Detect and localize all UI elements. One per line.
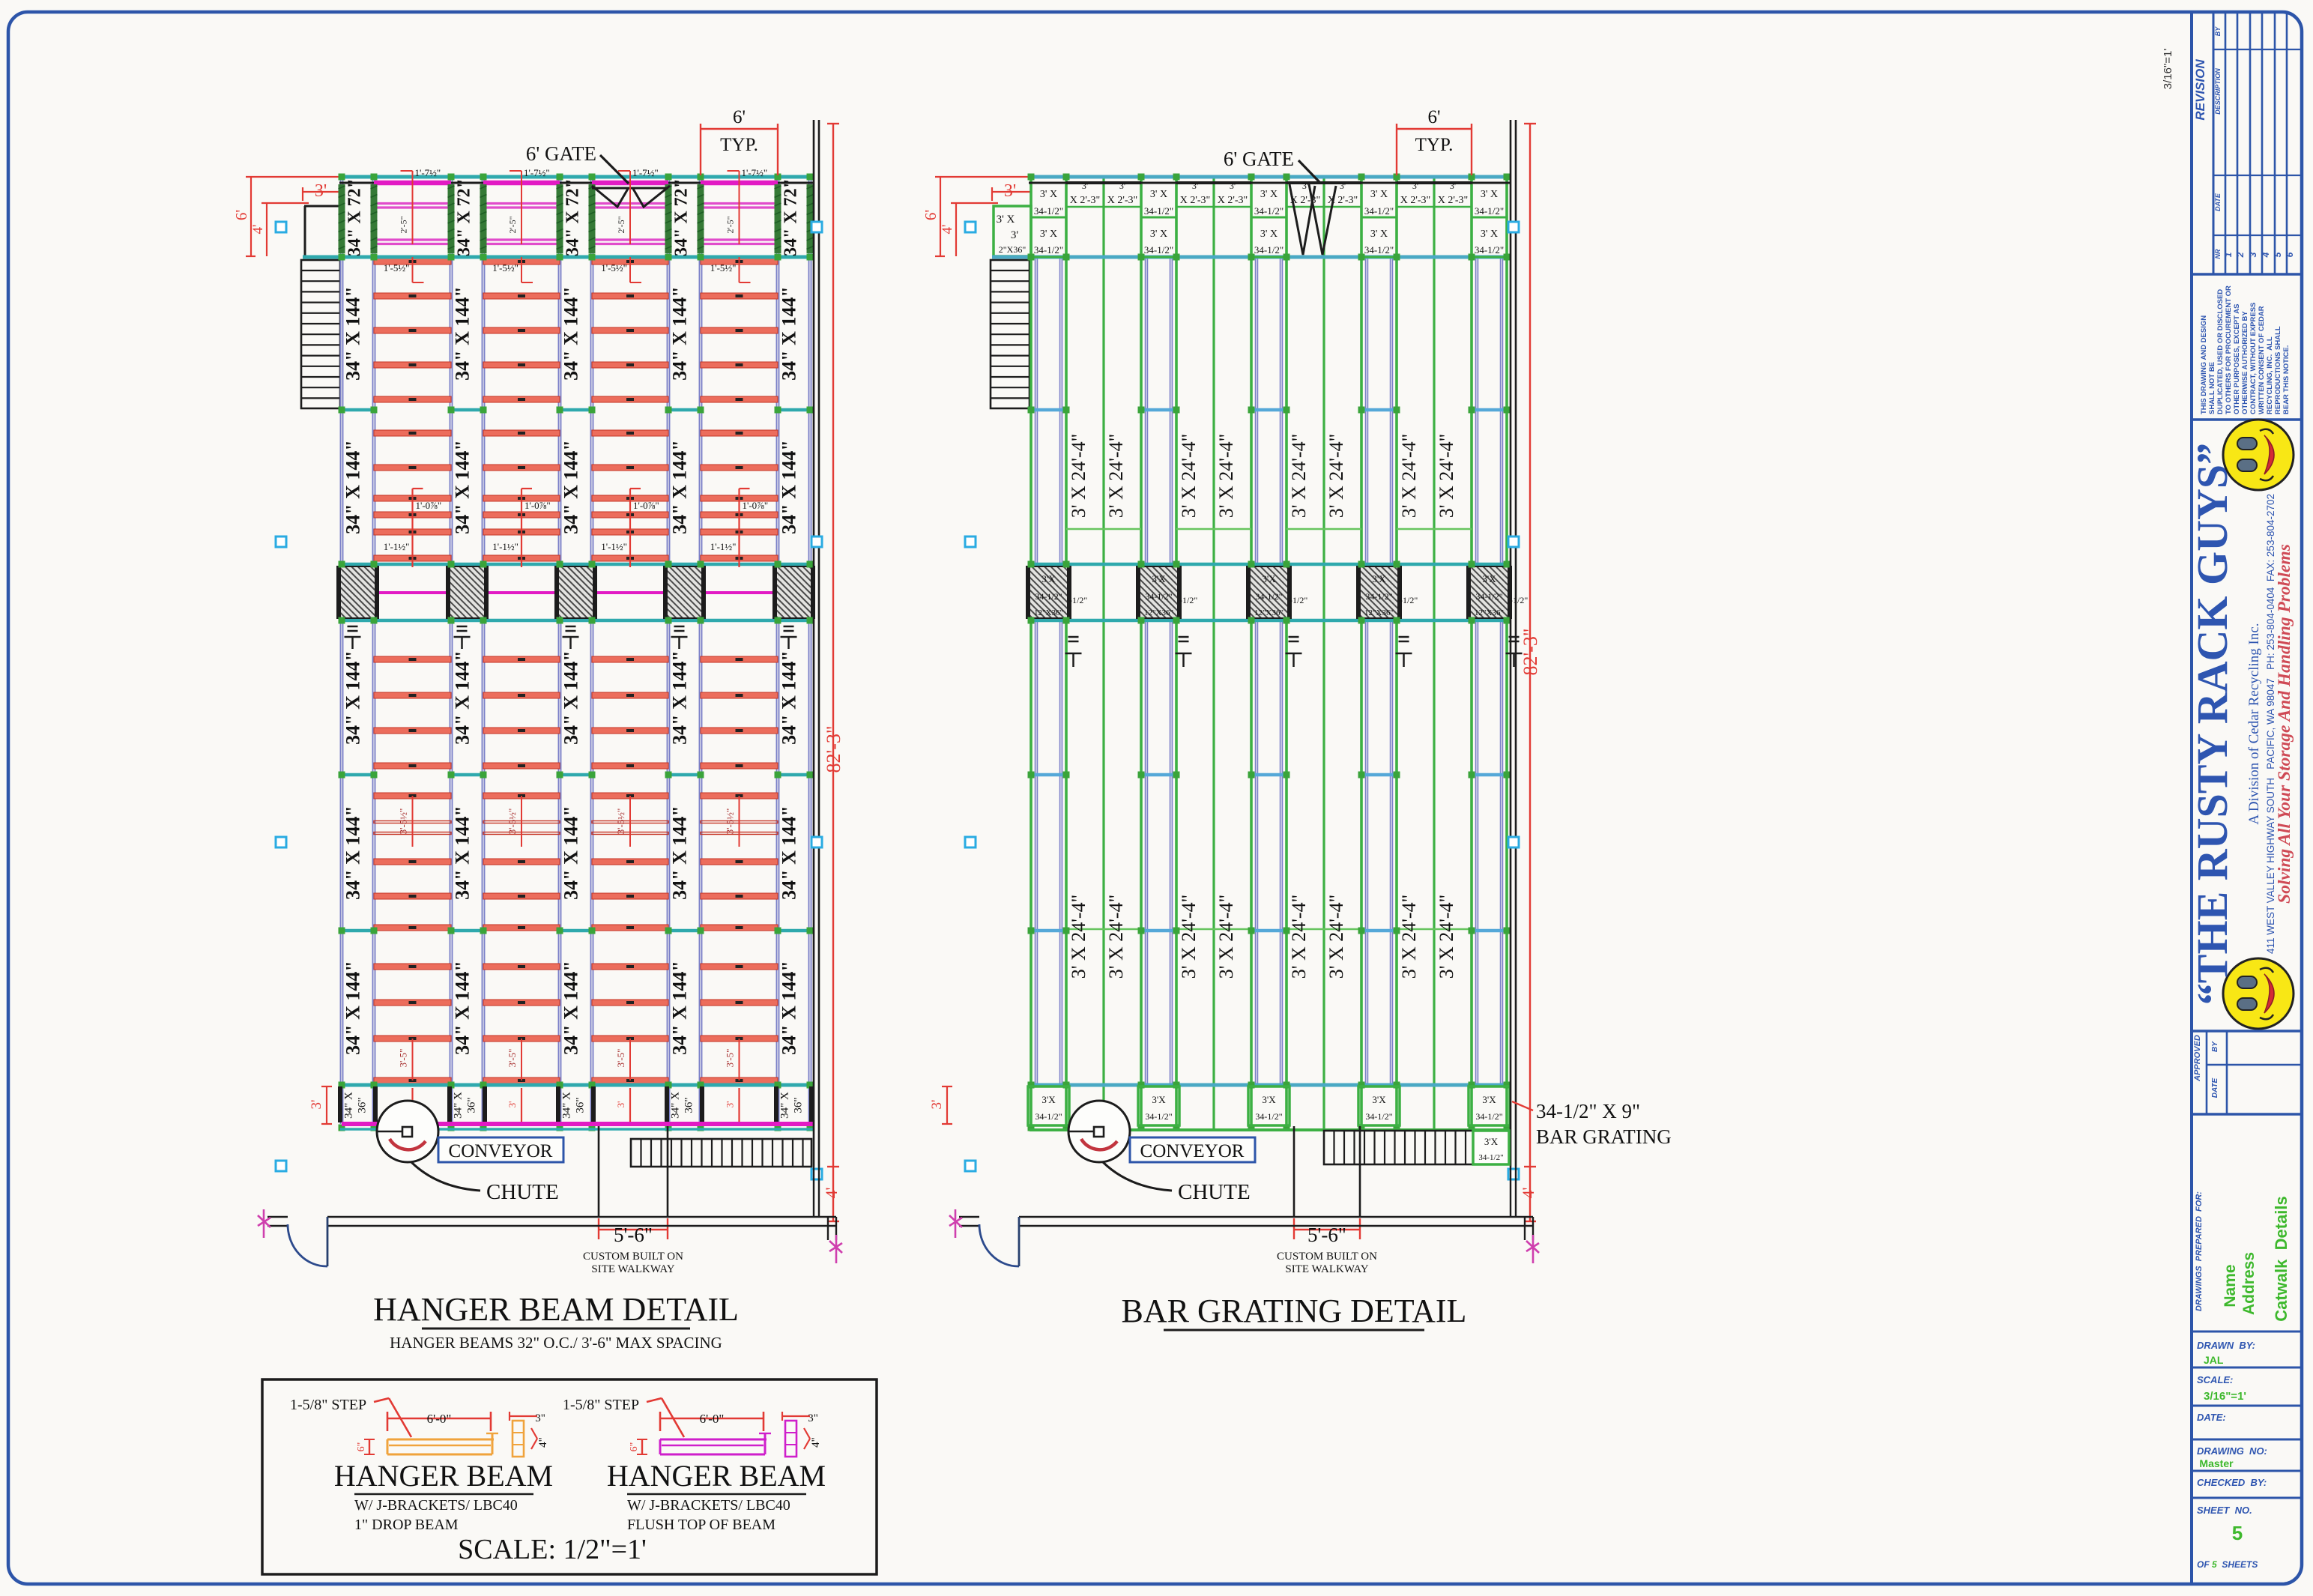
svg-text:3'X: 3'X (1262, 573, 1276, 584)
svg-text:CUSTOM BUILT ON: CUSTOM BUILT ON (583, 1251, 683, 1263)
svg-text:3'X: 3'X (1482, 1094, 1496, 1105)
svg-text:HANGER BEAM: HANGER BEAM (607, 1459, 826, 1493)
svg-text:34-1/2": 34-1/2" (1144, 205, 1173, 217)
svg-text:SCALE:: SCALE: (2197, 1374, 2233, 1385)
svg-text:3': 3' (1340, 181, 1346, 191)
svg-text:SITE WALKWAY: SITE WALKWAY (1285, 1263, 1368, 1275)
svg-text:OTHER PURPOSES, EXCEPT AS: OTHER PURPOSES, EXCEPT AS (2233, 304, 2241, 414)
svg-text:REPRODUCTIONS SHALL: REPRODUCTIONS SHALL (2274, 326, 2282, 414)
svg-text:“THE RUSTY RACK GUYS”: “THE RUSTY RACK GUYS” (2188, 443, 2237, 1005)
svg-text:2'-5": 2'-5" (507, 216, 518, 233)
svg-text:34" X: 34" X (670, 1092, 682, 1119)
svg-text:REVISION: REVISION (2193, 59, 2207, 121)
svg-text:1'-7½": 1'-7½" (742, 167, 768, 178)
svg-text:3' X 24'-4": 3' X 24'-4" (1068, 434, 1089, 518)
svg-text:RECYCLING, INC. ALL: RECYCLING, INC. ALL (2266, 336, 2274, 414)
svg-text:34-1/2": 34-1/2" (1254, 205, 1284, 217)
svg-text:3'X: 3'X (1482, 573, 1496, 584)
svg-text:34" X 72": 34" X 72" (345, 178, 365, 256)
svg-text:6' GATE: 6' GATE (526, 142, 596, 165)
svg-text:34" X 72": 34" X 72" (672, 178, 692, 256)
svg-text:-1/2": -1/2" (1289, 595, 1307, 605)
svg-text:1'-1½": 1'-1½" (384, 541, 410, 552)
svg-text:34" X 144": 34" X 144" (560, 286, 582, 381)
svg-text:6': 6' (922, 210, 940, 220)
svg-text:DATE:: DATE: (2197, 1412, 2226, 1423)
svg-text:OTHERWISE AUTHORIZED BY: OTHERWISE AUTHORIZED BY (2241, 311, 2249, 414)
svg-text:2'-5": 2'-5" (616, 216, 626, 233)
svg-text:X 2'-3": X 2'-3" (1400, 195, 1431, 206)
svg-text:HANGER BEAMS 32" O.C./ 3'-6" M: HANGER BEAMS 32" O.C./ 3'-6" MAX SPACING (390, 1334, 722, 1352)
svg-text:X 2'-3": X 2'-3" (1438, 195, 1469, 206)
svg-text:3': 3' (1119, 181, 1125, 191)
svg-text:34" X 72": 34" X 72" (781, 178, 801, 256)
svg-text:34-1/2": 34-1/2" (1145, 1111, 1172, 1122)
svg-text:34-1/2": 34-1/2" (1255, 1111, 1282, 1122)
svg-text:36": 36" (575, 1097, 587, 1113)
svg-text:3'-5½": 3'-5½" (615, 808, 626, 835)
svg-text:6": 6" (356, 1442, 367, 1452)
svg-text:36": 36" (466, 1097, 478, 1113)
svg-text:3/16"=1': 3/16"=1' (2162, 49, 2174, 90)
svg-text:3': 3' (929, 1100, 945, 1110)
svg-text:34-1/2": 34-1/2" (1145, 591, 1172, 602)
svg-text:3: 3 (2248, 252, 2258, 257)
svg-text:34" X 144": 34" X 144" (452, 805, 474, 900)
svg-text:1'-5½": 1'-5½" (601, 262, 627, 273)
svg-text:34" X 144": 34" X 144" (669, 805, 691, 900)
svg-text:3': 3' (1450, 181, 1456, 191)
svg-text:3': 3' (1082, 181, 1088, 191)
svg-text:BAR GRATING: BAR GRATING (1536, 1125, 1672, 1148)
svg-text:34-1/2": 34-1/2" (1255, 591, 1282, 602)
svg-text:DUPLICATED, USED OR DISCLOSED: DUPLICATED, USED OR DISCLOSED (2216, 289, 2225, 414)
svg-text:TYP.: TYP. (1415, 135, 1454, 155)
svg-text:3' X: 3' X (1481, 229, 1498, 240)
svg-text:6': 6' (1427, 107, 1440, 127)
svg-text:1-5/8" STEP: 1-5/8" STEP (563, 1397, 639, 1413)
svg-text:34-1/2": 34-1/2" (1475, 244, 1504, 256)
svg-text:-1/2": -1/2" (1069, 595, 1087, 605)
svg-text:82'-3": 82'-3" (1520, 629, 1541, 676)
svg-text:36": 36" (793, 1097, 805, 1113)
svg-text:34-1/2": 34-1/2" (1035, 591, 1062, 602)
svg-text:3' X: 3' X (1370, 229, 1388, 240)
svg-text:DESCRIPTION: DESCRIPTION (2214, 68, 2222, 115)
svg-text:2: 2 (2235, 252, 2246, 258)
svg-text:Solving All Your Storage And H: Solving All Your Storage And Handling Pr… (2275, 544, 2294, 904)
svg-text:34" X: 34" X (343, 1092, 355, 1119)
svg-text:34-1/2": 34-1/2" (1365, 591, 1392, 602)
svg-text:TYP.: TYP. (720, 135, 758, 155)
svg-text:3": 3" (808, 1412, 818, 1424)
svg-text:CONVEYOR: CONVEYOR (449, 1141, 553, 1161)
svg-text:3' X: 3' X (1260, 229, 1278, 240)
svg-text:1'-7½": 1'-7½" (415, 167, 441, 178)
svg-text:3'X: 3'X (1152, 573, 1166, 584)
svg-text:JAL: JAL (2204, 1354, 2224, 1366)
svg-text:3/16"=1': 3/16"=1' (2204, 1390, 2246, 1403)
svg-text:4': 4' (940, 225, 955, 235)
svg-text:3'X: 3'X (1484, 1136, 1499, 1147)
svg-text:-1/2": -1/2" (1510, 595, 1528, 605)
svg-text:34-1/2": 34-1/2" (1365, 1111, 1392, 1122)
svg-text:34-1/2": 34-1/2" (1475, 591, 1502, 602)
svg-text:3' X 24'-4": 3' X 24'-4" (1105, 434, 1127, 518)
svg-text:1'-7½": 1'-7½" (524, 167, 550, 178)
svg-text:2'-5": 2'-5" (399, 216, 409, 233)
svg-text:4': 4' (1519, 1187, 1538, 1198)
svg-text:3' X: 3' X (1370, 189, 1388, 200)
svg-text:3' X 24'-4": 3' X 24'-4" (1178, 434, 1200, 518)
svg-text:34" X 144": 34" X 144" (560, 440, 582, 534)
svg-text:3' X 24'-4": 3' X 24'-4" (1325, 434, 1347, 518)
svg-text:12"X36": 12"X36" (1144, 608, 1173, 617)
svg-text:4": 4" (537, 1437, 549, 1448)
svg-text:3': 3' (1412, 181, 1418, 191)
svg-text:BEAR THIS NOTICE.: BEAR THIS NOTICE. (2282, 345, 2291, 414)
svg-text:CHUTE: CHUTE (486, 1180, 559, 1204)
svg-text:34" X 144": 34" X 144" (452, 286, 474, 381)
svg-text:3' X 24'-4": 3' X 24'-4" (1398, 895, 1420, 979)
svg-text:3'X: 3'X (1041, 573, 1056, 584)
svg-text:34-1/2": 34-1/2" (1475, 205, 1504, 217)
svg-text:3' X 24'-4": 3' X 24'-4" (1105, 895, 1127, 979)
svg-text:3': 3' (1230, 181, 1236, 191)
svg-text:3' X 24'-4": 3' X 24'-4" (1288, 434, 1310, 518)
svg-text:DATE: DATE (2214, 193, 2222, 211)
svg-text:3': 3' (507, 1101, 518, 1108)
svg-text:3' X: 3' X (1040, 189, 1057, 200)
svg-text:X 2'-3": X 2'-3" (1218, 195, 1248, 206)
svg-text:3' X 24'-4": 3' X 24'-4" (1398, 434, 1420, 518)
svg-text:34" X 144": 34" X 144" (669, 650, 691, 745)
svg-text:3'-5½": 3'-5½" (398, 808, 409, 835)
svg-text:NR: NR (2214, 249, 2222, 259)
svg-text:3'-5½": 3'-5½" (725, 808, 736, 835)
svg-text:3': 3' (725, 1101, 736, 1108)
svg-text:1'-1½": 1'-1½" (601, 541, 627, 552)
svg-text:SHEET NO.: SHEET NO. (2197, 1505, 2252, 1516)
svg-text:6': 6' (232, 210, 250, 220)
svg-text:3': 3' (615, 1101, 626, 1108)
svg-text:TO OTHERS FOR PROCUREMENT OR: TO OTHERS FOR PROCUREMENT OR (2225, 285, 2233, 414)
svg-text:3': 3' (1004, 181, 1016, 201)
svg-text:THIS DRAWING AND DESIGN: THIS DRAWING AND DESIGN (2200, 315, 2208, 414)
svg-text:12"X36": 12"X36" (1034, 608, 1063, 617)
svg-text:34" X 144": 34" X 144" (778, 650, 800, 745)
svg-text:SCALE: 1/2"=1': SCALE: 1/2"=1' (458, 1534, 647, 1565)
svg-text:3': 3' (315, 181, 327, 201)
svg-text:34-1/2": 34-1/2" (1034, 205, 1063, 217)
svg-text:3' X 24'-4": 3' X 24'-4" (1068, 895, 1089, 979)
svg-text:34" X 144": 34" X 144" (452, 650, 474, 745)
svg-text:Name: Name (2222, 1264, 2239, 1307)
svg-text:1'-0⅞": 1'-0⅞" (416, 500, 442, 511)
svg-text:34" X: 34" X (561, 1092, 573, 1119)
svg-text:BY: BY (2211, 1041, 2219, 1052)
svg-text:6'-0": 6'-0" (427, 1412, 452, 1426)
svg-text:34" X 144": 34" X 144" (778, 805, 800, 900)
svg-text:1'-1½": 1'-1½" (710, 541, 737, 552)
svg-text:6': 6' (733, 107, 746, 127)
svg-text:Master: Master (2199, 1457, 2234, 1469)
svg-text:3' X: 3' X (1481, 189, 1498, 200)
svg-text:X 2'-3": X 2'-3" (1180, 195, 1211, 206)
svg-text:3': 3' (309, 1100, 324, 1110)
svg-text:3' X 24'-4": 3' X 24'-4" (1288, 895, 1310, 979)
svg-text:4': 4' (822, 1187, 841, 1198)
svg-text:5'-6": 5'-6" (614, 1224, 653, 1246)
svg-text:1'-0⅞": 1'-0⅞" (633, 500, 659, 511)
svg-text:34" X 144": 34" X 144" (342, 440, 364, 534)
svg-text:1'-0⅞": 1'-0⅞" (524, 500, 551, 511)
svg-text:3'X: 3'X (1372, 573, 1386, 584)
svg-text:36": 36" (357, 1097, 369, 1113)
svg-text:3': 3' (1192, 181, 1198, 191)
svg-text:34" X 144": 34" X 144" (342, 805, 364, 900)
svg-text:1'-1½": 1'-1½" (492, 541, 518, 552)
svg-text:34" X 144": 34" X 144" (560, 650, 582, 745)
svg-text:SITE WALKWAY: SITE WALKWAY (591, 1263, 674, 1275)
svg-text:3' X 24'-4": 3' X 24'-4" (1215, 434, 1237, 518)
svg-text:34" X 144": 34" X 144" (560, 805, 582, 900)
svg-text:34-1/2": 34-1/2" (1475, 1111, 1502, 1122)
svg-text:3'X: 3'X (1152, 1094, 1166, 1105)
svg-text:34" X 72": 34" X 72" (455, 178, 474, 256)
svg-text:34" X 144": 34" X 144" (342, 650, 364, 745)
svg-text:34" X 72": 34" X 72" (563, 178, 583, 256)
svg-text:34" X 144": 34" X 144" (669, 286, 691, 381)
svg-text:1'-7½": 1'-7½" (632, 167, 659, 178)
svg-text:34-1/2": 34-1/2" (1364, 244, 1394, 256)
svg-text:1'-5½": 1'-5½" (710, 262, 737, 273)
svg-text:3': 3' (1011, 229, 1019, 241)
svg-text:CHECKED BY:: CHECKED BY: (2197, 1477, 2267, 1488)
svg-text:34" X 144": 34" X 144" (778, 286, 800, 381)
svg-text:34" X: 34" X (779, 1092, 791, 1119)
svg-text:2"X36": 2"X36" (999, 244, 1027, 255)
svg-text:FLUSH TOP OF BEAM: FLUSH TOP OF BEAM (627, 1517, 775, 1533)
svg-text:3' X 24'-4": 3' X 24'-4" (1178, 895, 1200, 979)
svg-text:1'-5½": 1'-5½" (492, 262, 518, 273)
svg-text:3'-5": 3'-5" (507, 1049, 518, 1068)
svg-text:3' X 24'-4": 3' X 24'-4" (1215, 895, 1237, 979)
svg-text:5: 5 (2273, 252, 2283, 257)
svg-text:-1/2": -1/2" (1400, 595, 1418, 605)
svg-text:3'-5½": 3'-5½" (507, 808, 518, 835)
svg-text:4': 4' (250, 225, 266, 235)
svg-text:34" X: 34" X (453, 1092, 465, 1119)
svg-text:3' X: 3' X (997, 214, 1015, 226)
svg-text:W/ J-BRACKETS/ LBC40: W/ J-BRACKETS/ LBC40 (627, 1497, 790, 1514)
svg-text:3' X 24'-4": 3' X 24'-4" (1436, 895, 1457, 979)
svg-text:Address: Address (2240, 1252, 2258, 1315)
svg-text:34" X 144": 34" X 144" (560, 961, 582, 1055)
svg-text:34-1/2": 34-1/2" (1254, 244, 1284, 256)
svg-text:3': 3' (1302, 181, 1308, 191)
svg-text:DRAWN BY:: DRAWN BY: (2197, 1340, 2255, 1351)
svg-text:3'-5": 3'-5" (398, 1049, 409, 1068)
svg-text:34-1/2": 34-1/2" (1478, 1153, 1503, 1162)
svg-text:DRAWINGS PREPARED FOR:: DRAWINGS PREPARED FOR: (2195, 1191, 2204, 1311)
svg-text:12"X36": 12"X36" (1254, 608, 1284, 617)
svg-text:3' X: 3' X (1040, 229, 1057, 240)
svg-text:BAR GRATING DETAIL: BAR GRATING DETAIL (1122, 1293, 1467, 1329)
svg-text:34" X 144": 34" X 144" (342, 286, 364, 381)
svg-text:34" X 144": 34" X 144" (669, 440, 691, 534)
svg-text:34" X 144": 34" X 144" (452, 961, 474, 1055)
svg-text:1-5/8" STEP: 1-5/8" STEP (290, 1397, 366, 1413)
svg-text:X 2'-3": X 2'-3" (1070, 195, 1101, 206)
svg-text:1'-0⅞": 1'-0⅞" (743, 500, 769, 511)
svg-text:36": 36" (683, 1097, 695, 1113)
svg-text:-1/2": -1/2" (1179, 595, 1197, 605)
svg-text:DATE: DATE (2211, 1077, 2219, 1098)
svg-text:3": 3" (535, 1412, 545, 1424)
svg-text:34" X 144": 34" X 144" (778, 440, 800, 534)
svg-text:3'X: 3'X (1041, 1094, 1056, 1105)
svg-text:CUSTOM BUILT ON: CUSTOM BUILT ON (1277, 1251, 1377, 1263)
svg-text:3' X 24'-4": 3' X 24'-4" (1436, 434, 1457, 518)
svg-text:6: 6 (2285, 252, 2295, 257)
svg-text:3'-5": 3'-5" (725, 1049, 736, 1068)
svg-text:3' X 24'-4": 3' X 24'-4" (1325, 895, 1347, 979)
svg-text:CONTRACT, WITHOUT EXPRESS: CONTRACT, WITHOUT EXPRESS (2249, 303, 2258, 414)
svg-text:WRITTEN CONSENT OF CEDAR: WRITTEN CONSENT OF CEDAR (2258, 306, 2266, 414)
svg-text:4: 4 (2261, 252, 2271, 258)
svg-text:A Division of Cedar Recycling: A Division of Cedar Recycling Inc. (2246, 623, 2262, 824)
svg-text:X 2'-3": X 2'-3" (1107, 195, 1138, 206)
svg-text:HANGER BEAM DETAIL: HANGER BEAM DETAIL (373, 1291, 739, 1328)
svg-text:34-1/2": 34-1/2" (1035, 1111, 1062, 1122)
svg-text:6": 6" (629, 1442, 640, 1452)
svg-text:X 2'-3": X 2'-3" (1290, 195, 1321, 206)
svg-text:5'-6": 5'-6" (1307, 1224, 1346, 1246)
svg-text:5: 5 (2232, 1522, 2243, 1544)
svg-text:34-1/2": 34-1/2" (1144, 244, 1173, 256)
svg-text:2'-5": 2'-5" (725, 216, 736, 233)
svg-text:APPROVED: APPROVED (2193, 1035, 2202, 1082)
svg-text:1'-5½": 1'-5½" (384, 262, 410, 273)
svg-text:W/ J-BRACKETS/ LBC40: W/ J-BRACKETS/ LBC40 (354, 1497, 518, 1514)
svg-text:6' GATE: 6' GATE (1224, 148, 1294, 170)
svg-text:34-1/2" X 9": 34-1/2" X 9" (1536, 1100, 1640, 1122)
svg-text:12"X36": 12"X36" (1475, 608, 1504, 617)
svg-text:34" X 144": 34" X 144" (452, 440, 474, 534)
svg-text:34" X 144": 34" X 144" (342, 961, 364, 1055)
svg-text:34-1/2": 34-1/2" (1364, 205, 1394, 217)
svg-text:HANGER BEAM: HANGER BEAM (334, 1459, 553, 1493)
svg-text:82'-3": 82'-3" (823, 726, 844, 773)
svg-text:CHUTE: CHUTE (1178, 1180, 1251, 1204)
svg-text:BY: BY (2214, 26, 2222, 36)
svg-text:3'X: 3'X (1262, 1094, 1276, 1105)
svg-text:34" X 144": 34" X 144" (778, 961, 800, 1055)
svg-text:3' X: 3' X (1260, 189, 1278, 200)
svg-text:1: 1 (2223, 252, 2234, 257)
svg-text:6'-0": 6'-0" (700, 1412, 725, 1426)
svg-text:3'-5": 3'-5" (615, 1049, 626, 1068)
svg-text:SHALL NOT BE: SHALL NOT BE (2208, 362, 2216, 414)
svg-text:3'X: 3'X (1372, 1094, 1386, 1105)
svg-text:3' X: 3' X (1150, 189, 1167, 200)
svg-text:34" X 144": 34" X 144" (669, 961, 691, 1055)
svg-text:OF 5 SHEETS: OF 5 SHEETS (2197, 1559, 2258, 1570)
svg-text:12"X36": 12"X36" (1364, 608, 1394, 617)
svg-text:3' X: 3' X (1150, 229, 1167, 240)
svg-text:4": 4" (810, 1437, 822, 1448)
svg-text:DRAWING NO:: DRAWING NO: (2197, 1445, 2267, 1457)
svg-text:Catwalk Details: Catwalk Details (2272, 1196, 2291, 1322)
svg-text:1" DROP BEAM: 1" DROP BEAM (354, 1517, 459, 1533)
svg-text:34-1/2": 34-1/2" (1034, 244, 1063, 256)
svg-text:CONVEYOR: CONVEYOR (1140, 1141, 1245, 1161)
